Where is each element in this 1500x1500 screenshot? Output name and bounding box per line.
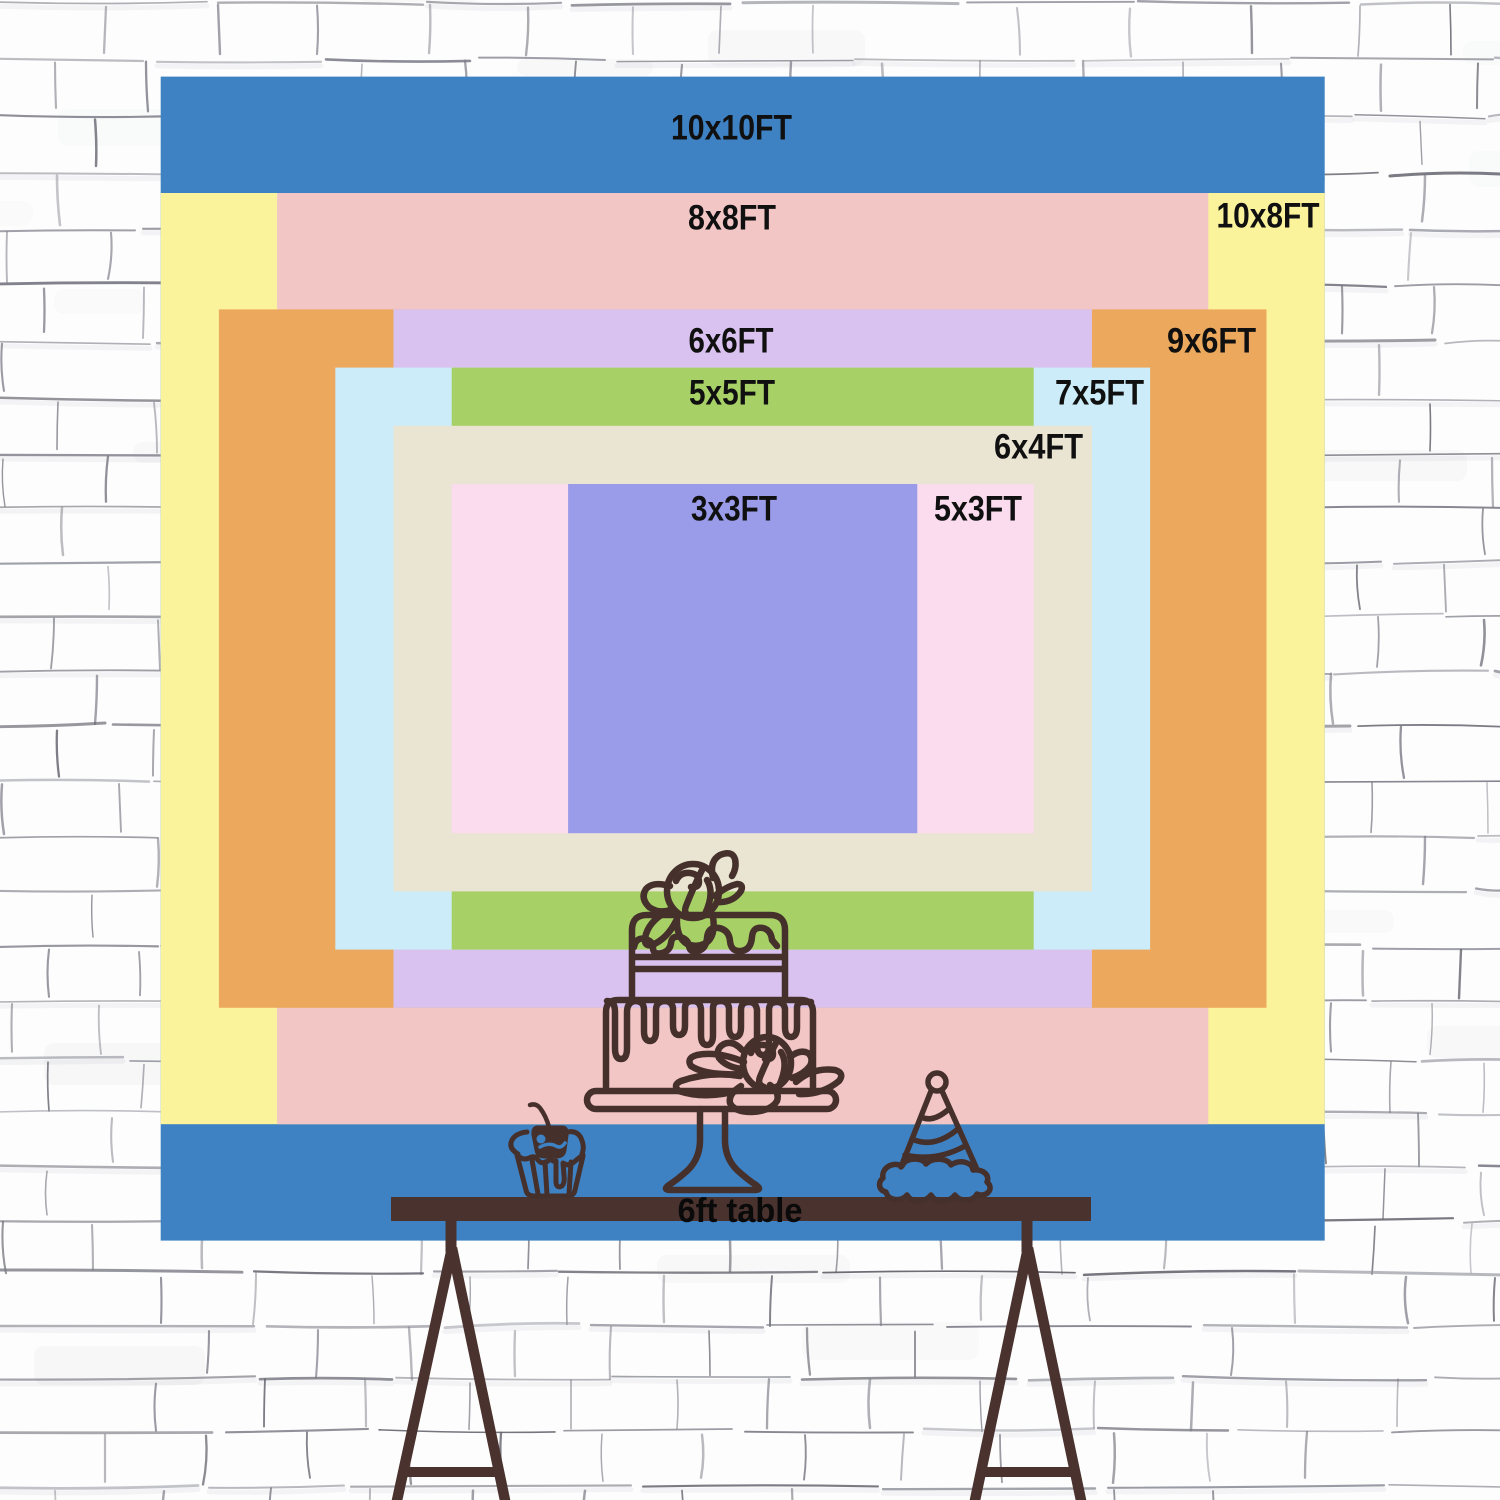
svg-text:9x6FT: 9x6FT [1167,322,1256,361]
svg-text:6x4FT: 6x4FT [994,428,1083,467]
svg-text:10x8FT: 10x8FT [1217,197,1320,236]
svg-text:10x10FT: 10x10FT [671,109,792,148]
svg-text:3x3FT: 3x3FT [691,490,777,529]
svg-text:6ft table: 6ft table [678,1192,803,1230]
svg-text:8x8FT: 8x8FT [688,199,776,238]
svg-text:5x5FT: 5x5FT [689,374,775,413]
svg-text:5x3FT: 5x3FT [934,490,1022,529]
svg-text:6x6FT: 6x6FT [689,322,774,361]
svg-text:7x5FT: 7x5FT [1055,374,1144,413]
